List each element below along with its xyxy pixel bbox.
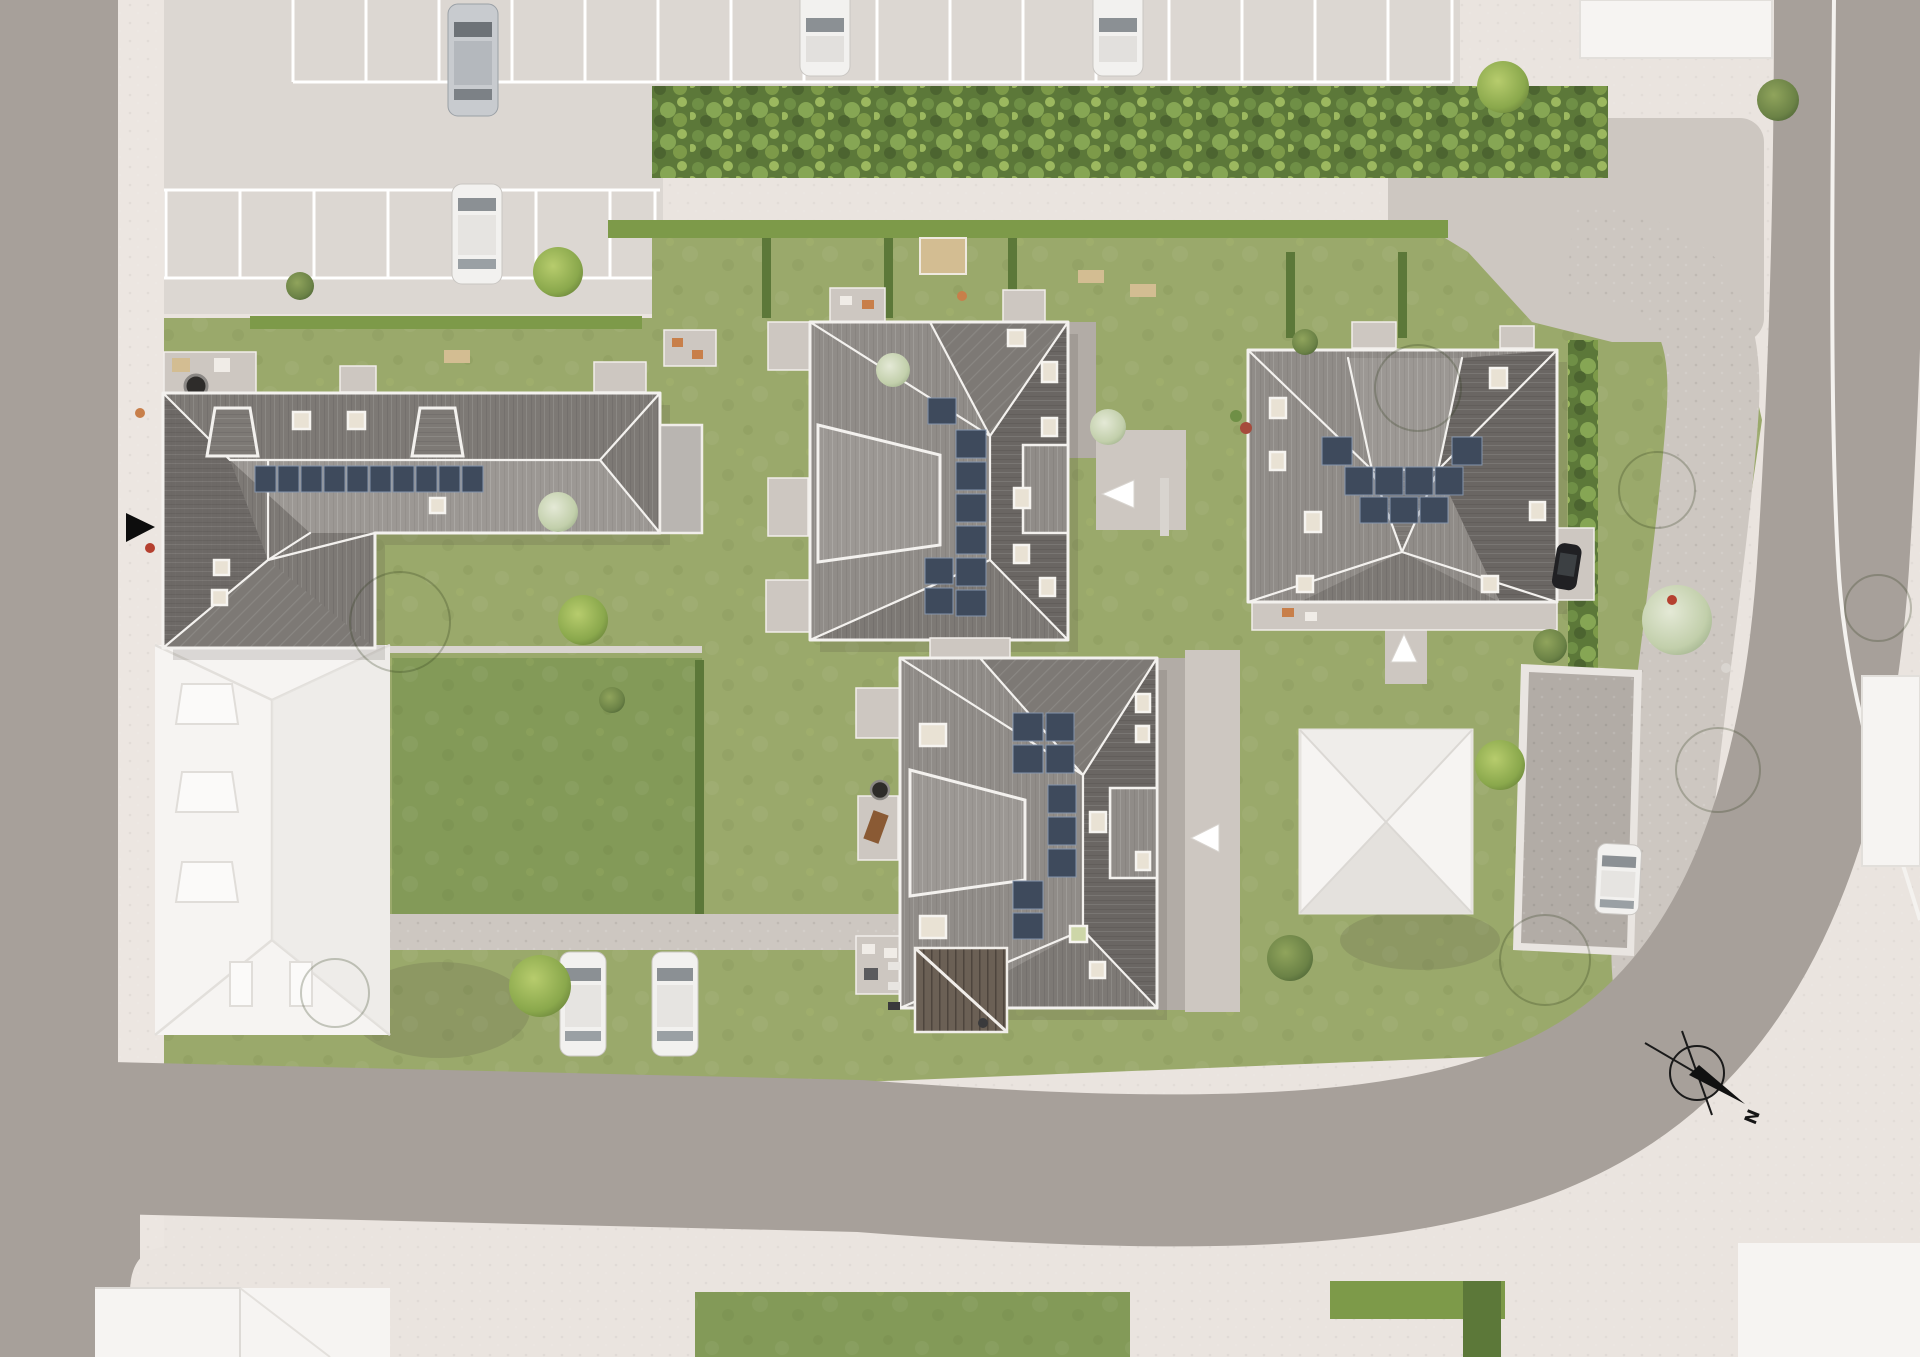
tree: [1477, 61, 1529, 113]
hedge-row-west-garden: [250, 316, 642, 329]
car-white: [1594, 843, 1642, 915]
car-silver: [448, 4, 498, 116]
car-white: [1093, 0, 1143, 76]
skylight: [214, 560, 229, 575]
chair: [1305, 612, 1317, 621]
skylight: [1042, 418, 1057, 436]
table: [864, 968, 878, 980]
skylight: [1136, 726, 1149, 742]
neighbor-building-southwest: [95, 1288, 390, 1357]
terrace-pad: [594, 362, 646, 392]
skylight: [1305, 512, 1321, 532]
person: [135, 408, 145, 418]
bench: [1078, 270, 1104, 283]
car-white: [800, 0, 850, 76]
skylight: [1270, 452, 1285, 470]
skylight: [1042, 362, 1057, 382]
skylight: [1090, 812, 1106, 832]
dormer: [412, 408, 463, 456]
cyclist: [1667, 595, 1677, 605]
terrace-pad: [768, 478, 808, 536]
car-white: [452, 184, 502, 284]
chair: [884, 948, 897, 958]
terrace-pad: [1003, 290, 1045, 322]
bike-rack: [888, 1002, 900, 1010]
garden-wall: [390, 646, 702, 653]
skylight: [348, 412, 365, 429]
tree: [1475, 740, 1525, 790]
skylight: [920, 916, 946, 938]
sandbox: [920, 238, 966, 274]
bush: [876, 353, 910, 387]
dormer: [207, 408, 258, 456]
bush: [286, 272, 314, 300]
lawn-dark-texture: [392, 658, 702, 916]
terrace-band-south: [1252, 602, 1557, 630]
terrace-pad: [340, 366, 376, 392]
bench-long: [1160, 478, 1169, 536]
bench: [444, 350, 470, 363]
skylight: [1297, 576, 1313, 592]
bush: [1533, 629, 1567, 663]
skylight: [1040, 578, 1055, 596]
chair: [692, 350, 703, 359]
terrace-pad: [1352, 322, 1396, 348]
tree: [533, 247, 583, 297]
tree-flowering: [1642, 585, 1712, 655]
garden-divider-hedge: [1398, 252, 1407, 338]
neighbor-building-southeast: [1738, 1243, 1920, 1357]
person: [145, 543, 155, 553]
bush: [1090, 409, 1126, 445]
bench: [214, 358, 230, 372]
road-west: [0, 0, 118, 1357]
skylight: [1490, 368, 1507, 388]
terrace-pad: [768, 322, 810, 370]
hedge-row-thin: [608, 220, 1448, 238]
garden-divider-hedge: [1286, 252, 1295, 338]
path-entrance-b: [1096, 430, 1186, 530]
terrace-pad: [856, 688, 900, 738]
car-white: [652, 952, 698, 1056]
planter: [1230, 410, 1242, 422]
skylight: [1270, 398, 1286, 418]
garden-divider-hedge: [695, 660, 704, 916]
bush: [1292, 329, 1318, 355]
skylight: [1482, 576, 1498, 592]
building-d: [856, 638, 1219, 1020]
garden-divider-hedge: [762, 238, 771, 318]
tree: [509, 955, 571, 1017]
terrace-pad: [1500, 326, 1534, 348]
skylight: [212, 590, 227, 605]
bike-rack: [888, 962, 900, 970]
garage-shadow: [1340, 910, 1500, 970]
skylight: [1136, 694, 1150, 712]
car-white: [560, 952, 606, 1056]
terrace-pad: [830, 288, 885, 322]
tree: [1757, 79, 1799, 121]
skylight: [1008, 330, 1025, 346]
skylight-green: [1070, 926, 1087, 942]
tree: [599, 687, 625, 713]
terrace-pad-east: [664, 330, 716, 366]
building-c: [1230, 322, 1594, 662]
chair: [672, 338, 683, 347]
person: [978, 1018, 988, 1028]
roof-annex-east: [660, 425, 702, 533]
south-green-texture: [695, 1292, 1130, 1357]
skylight: [1530, 502, 1545, 520]
bench: [172, 358, 190, 372]
south-hedge-l-corner: [1463, 1281, 1501, 1357]
hedge-east-boundary: [1568, 340, 1598, 670]
hedge-band-north: [652, 86, 1608, 178]
neighbor-building-northeast: [1580, 0, 1772, 58]
skylight: [1014, 488, 1030, 508]
neighbor-building-east: [1862, 676, 1920, 866]
chair: [1282, 608, 1294, 617]
planter: [1240, 422, 1252, 434]
skylight: [430, 498, 445, 513]
bench: [1130, 284, 1156, 297]
bike-rack: [888, 982, 900, 990]
bush: [1267, 935, 1313, 981]
person: [957, 291, 967, 301]
chair: [862, 300, 874, 309]
site-plan-canvas: N: [0, 0, 1920, 1357]
skylight: [1014, 545, 1029, 563]
tree: [558, 595, 608, 645]
person: [1721, 663, 1731, 673]
chair: [840, 296, 852, 305]
skylight: [1090, 962, 1105, 978]
skylight: [293, 412, 310, 429]
chair: [862, 944, 875, 954]
skylight: [1136, 852, 1150, 870]
tree-flowering: [538, 492, 578, 532]
terrace-pad: [766, 580, 810, 632]
skylight: [920, 724, 946, 746]
grill-icon: [871, 781, 889, 799]
site-plan-rendering: N: [0, 0, 1920, 1357]
